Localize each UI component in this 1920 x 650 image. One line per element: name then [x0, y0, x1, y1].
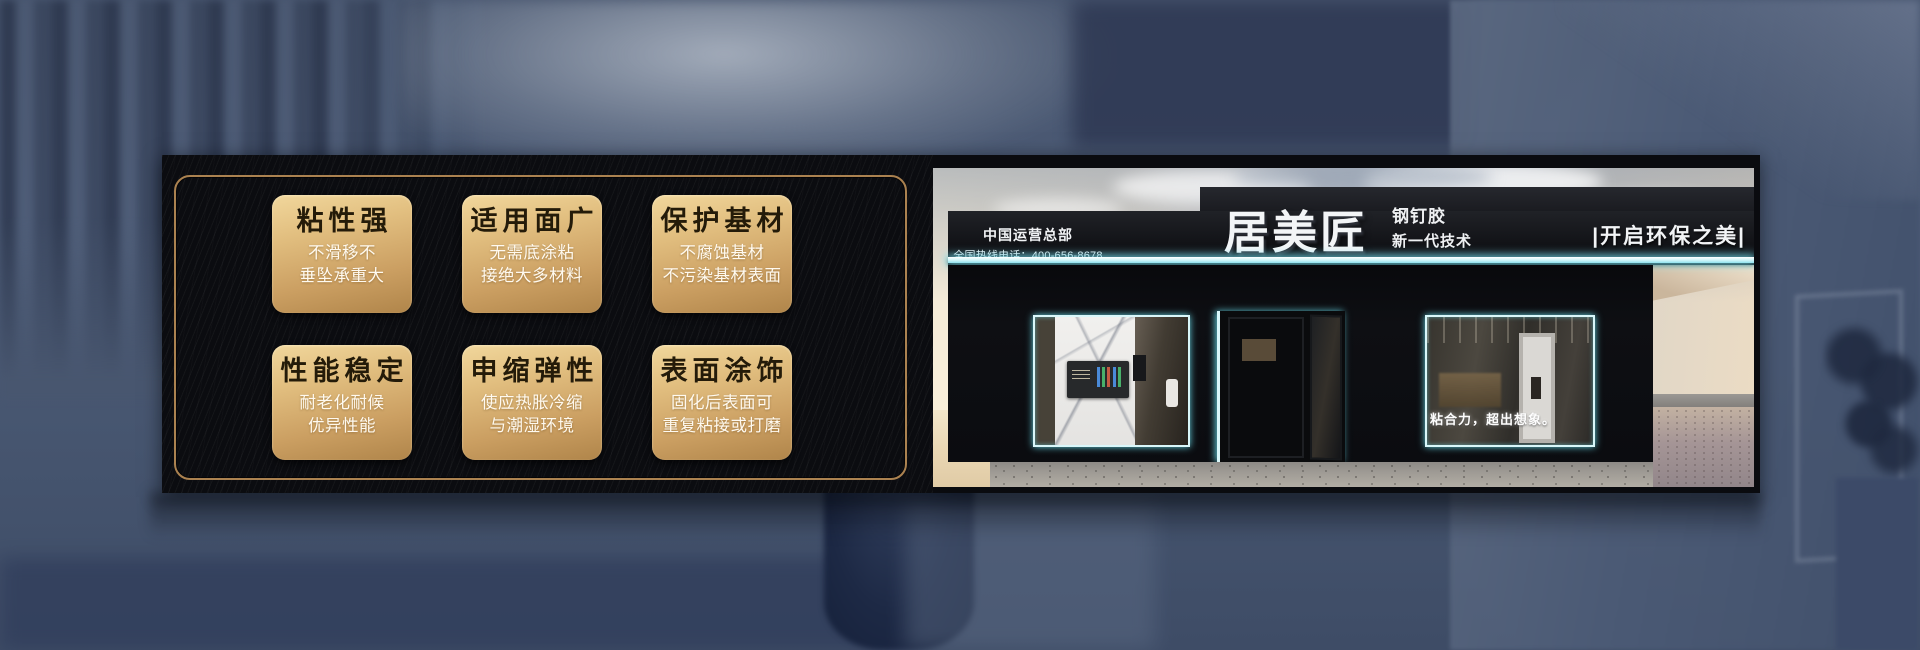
display-window-right: 粘合力，超出想象。 — [1425, 315, 1595, 447]
tech-tagline: 新一代技术 — [1392, 230, 1472, 251]
feature-card-line2: 接绝大多材料 — [481, 265, 583, 288]
feature-card-title: 保护基材 — [656, 206, 789, 237]
storefront-facade: 粘合力，超出想象。 — [948, 265, 1653, 462]
feature-card-title: 性能稳定 — [276, 356, 409, 387]
page-background: 粘性强 不滑移不 垂坠承重大 适用面广 无需底涂粘 接绝大多材料 保护基材 不腐… — [0, 0, 1920, 650]
hq-label: 中国运营总部 — [948, 225, 1108, 245]
background-pedestal — [1836, 478, 1918, 650]
banner-drop-shadow — [150, 492, 1762, 538]
feature-card-line2: 不污染基材表面 — [663, 265, 782, 288]
display-window-left — [1033, 315, 1190, 447]
interior-artwork-reflection — [1242, 339, 1276, 361]
feature-card-title: 适用面广 — [466, 206, 599, 237]
feature-card-elastic: 申缩弹性 使应热胀冷缩 与潮湿环境 — [462, 345, 602, 460]
background-dark-beam — [1072, 0, 1472, 148]
feature-card-title: 申缩弹性 — [466, 356, 599, 387]
storefront-sign-band: 中国运营总部 全国热线电话：400-656-8678 居美匠 钢钉胶 新一代技术… — [948, 187, 1754, 265]
distant-wall-right — [1645, 394, 1754, 407]
background-picture-frame — [1795, 289, 1903, 563]
interior-shelf — [1439, 373, 1501, 407]
feature-card-line1: 使应热胀冷缩 — [481, 392, 583, 415]
background-bottom-furniture — [0, 558, 920, 650]
feature-card-line1: 固化后表面可 — [671, 392, 773, 415]
feature-card-adhesion: 粘性强 不滑移不 垂坠承重大 — [272, 195, 412, 313]
feature-card-line1: 无需底涂粘 — [490, 242, 575, 265]
product-display-board — [1067, 361, 1129, 398]
logo-plaque — [1133, 355, 1146, 381]
feature-card-line2: 重复粘接或打磨 — [663, 415, 782, 438]
interior-ceiling-grid — [1427, 317, 1595, 343]
storefront-photo: 中国运营总部 全国热线电话：400-656-8678 居美匠 钢钉胶 新一代技术… — [933, 168, 1754, 487]
feature-card-grid: 粘性强 不滑移不 垂坠承重大 适用面广 无需底涂粘 接绝大多材料 保护基材 不腐… — [272, 195, 792, 460]
feature-card-line1: 不腐蚀基材 — [680, 242, 765, 265]
white-vase — [1166, 379, 1178, 407]
window-interior — [1131, 317, 1188, 447]
window-glass-slogan: 粘合力，超出想象。 — [1430, 409, 1556, 428]
door-leaf-open — [1310, 314, 1342, 460]
feature-card-title: 粘性强 — [292, 206, 393, 237]
color-swatch-bars — [1097, 367, 1123, 387]
eco-slogan: |开启环保之美| — [1592, 220, 1746, 250]
feature-card-wide-use: 适用面广 无需底涂粘 接绝大多材料 — [462, 195, 602, 313]
product-name: 钢钉胶 — [1392, 202, 1472, 227]
brand-logotype: 居美匠 — [1224, 196, 1368, 261]
feature-card-stable: 性能稳定 耐老化耐候 优异性能 — [272, 345, 412, 460]
feature-card-title: 表面涂饰 — [656, 356, 789, 387]
background-mountain-artwork — [400, 0, 1120, 180]
background-light-patch — [905, 495, 1155, 650]
interior-sculpture — [1531, 377, 1541, 399]
feature-card-line1: 耐老化耐候 — [300, 392, 385, 415]
feature-card-protect-substrate: 保护基材 不腐蚀基材 不污染基材表面 — [652, 195, 792, 313]
background-plant-silhouette — [1824, 322, 1920, 492]
cobblestone-pavement — [990, 462, 1653, 487]
features-panel: 粘性强 不滑移不 垂坠承重大 适用面广 无需底涂粘 接绝大多材料 保护基材 不腐… — [162, 155, 933, 493]
led-strip — [948, 257, 1754, 263]
paved-ground-right — [1645, 407, 1754, 487]
board-text-lines — [1072, 370, 1090, 380]
feature-card-line1: 不滑移不 — [308, 242, 376, 265]
feature-card-line2: 与潮湿环境 — [490, 415, 575, 438]
feature-card-line2: 优异性能 — [308, 415, 376, 438]
brand-subtitle-block: 钢钉胶 新一代技术 — [1392, 202, 1472, 251]
glass-entry-door — [1217, 311, 1345, 462]
feature-card-surface-finish: 表面涂饰 固化后表面可 重复粘接或打磨 — [652, 345, 792, 460]
feature-card-line2: 垂坠承重大 — [300, 265, 385, 288]
promo-banner: 粘性强 不滑移不 垂坠承重大 适用面广 无需底涂粘 接绝大多材料 保护基材 不腐… — [162, 155, 1760, 493]
